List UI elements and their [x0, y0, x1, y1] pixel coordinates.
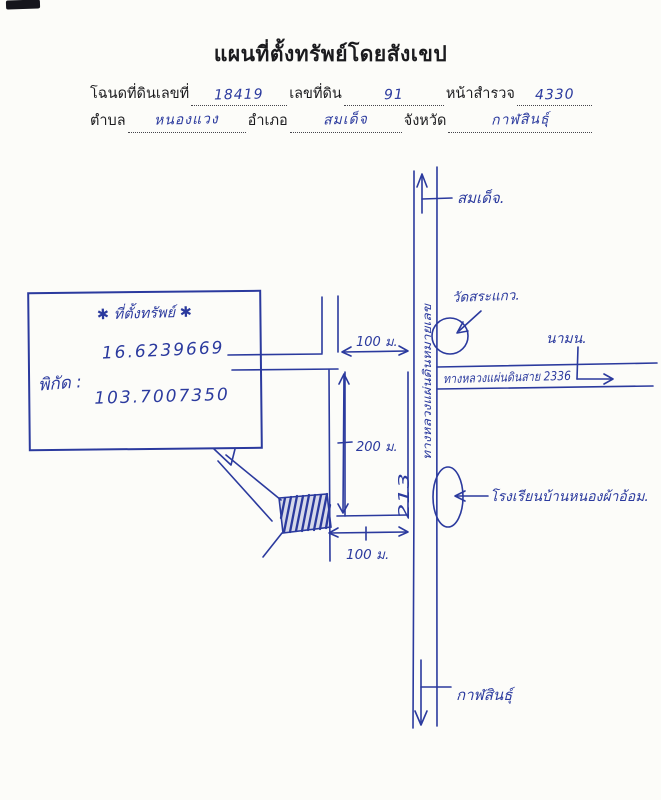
scanned-document-page: แผนที่ตั้งทรัพย์โดยสังเขป โฉนดที่ดินเลขท…	[0, 0, 661, 800]
south-direction: กาฬสินธุ์	[415, 660, 515, 725]
dimension-side: 200 ม.	[338, 374, 398, 513]
coordinates-label: พิกัด :	[37, 368, 83, 398]
temple-arrow-shaft	[459, 311, 481, 331]
dimension-bottom: 100 ม.	[329, 527, 408, 563]
dimension-side-label: 200 ม.	[356, 440, 398, 455]
dimension-top-line	[343, 351, 407, 352]
dimension-side-line	[343, 375, 344, 512]
east-highway-name-label: ทางหลวงแผ่นดินสาย 2336	[443, 368, 571, 386]
north-destination-label: สมเด็จ.	[457, 189, 504, 207]
dimension-top-label: 100 ม.	[356, 335, 398, 350]
south-destination-label: กาฬสินธุ์	[456, 686, 515, 704]
dimension-top: 100 ม.	[342, 335, 408, 356]
east-label-leader	[577, 347, 578, 379]
main-road-left-edge	[413, 171, 414, 728]
dimension-side-tick	[338, 442, 352, 443]
temple-marker: วัดสระแกว.	[432, 288, 520, 354]
east-highway-top-edge	[437, 363, 657, 367]
main-road-name-label: ทางหลวงแผ่นดินหมายเลข	[420, 303, 434, 460]
school-marker: โรงเรียนบ้านหนองผ้าอ้อม.	[433, 467, 649, 527]
east-highway-bottom-edge	[437, 386, 653, 389]
north-label-leader	[422, 198, 452, 199]
property-box-header: ✱ ที่ตั้งทรัพย์ ✱	[29, 299, 260, 328]
east-destination-label: นามน.	[546, 331, 587, 347]
temple-label: วัดสระแกว.	[452, 288, 520, 306]
block-bottom-boundary	[337, 515, 408, 516]
callout-line-1	[226, 455, 281, 500]
dimension-bottom-label: 100 ม.	[346, 547, 389, 563]
latitude-value: 16.6239669	[101, 338, 225, 364]
main-road-number-label: 213	[395, 473, 413, 519]
school-label: โรงเรียนบ้านหนองผ้าอ้อม.	[490, 488, 649, 505]
main-road-right-edge	[437, 167, 438, 726]
north-direction: สมเด็จ.	[417, 174, 504, 213]
dimension-bottom-line	[330, 532, 407, 533]
property-coordinates-box: ✱ ที่ตั้งทรัพย์ ✱ พิกัด : 16.6239669 103…	[27, 290, 263, 451]
east-highway: นามน. ทางหลวงแผ่นดินสาย 2336	[437, 331, 657, 389]
longitude-value: 103.7007350	[94, 385, 230, 409]
property-plot-stray-line	[263, 533, 282, 557]
subject-property-plot	[263, 494, 331, 557]
callout-leader	[214, 449, 281, 521]
callout-tail	[214, 449, 235, 465]
